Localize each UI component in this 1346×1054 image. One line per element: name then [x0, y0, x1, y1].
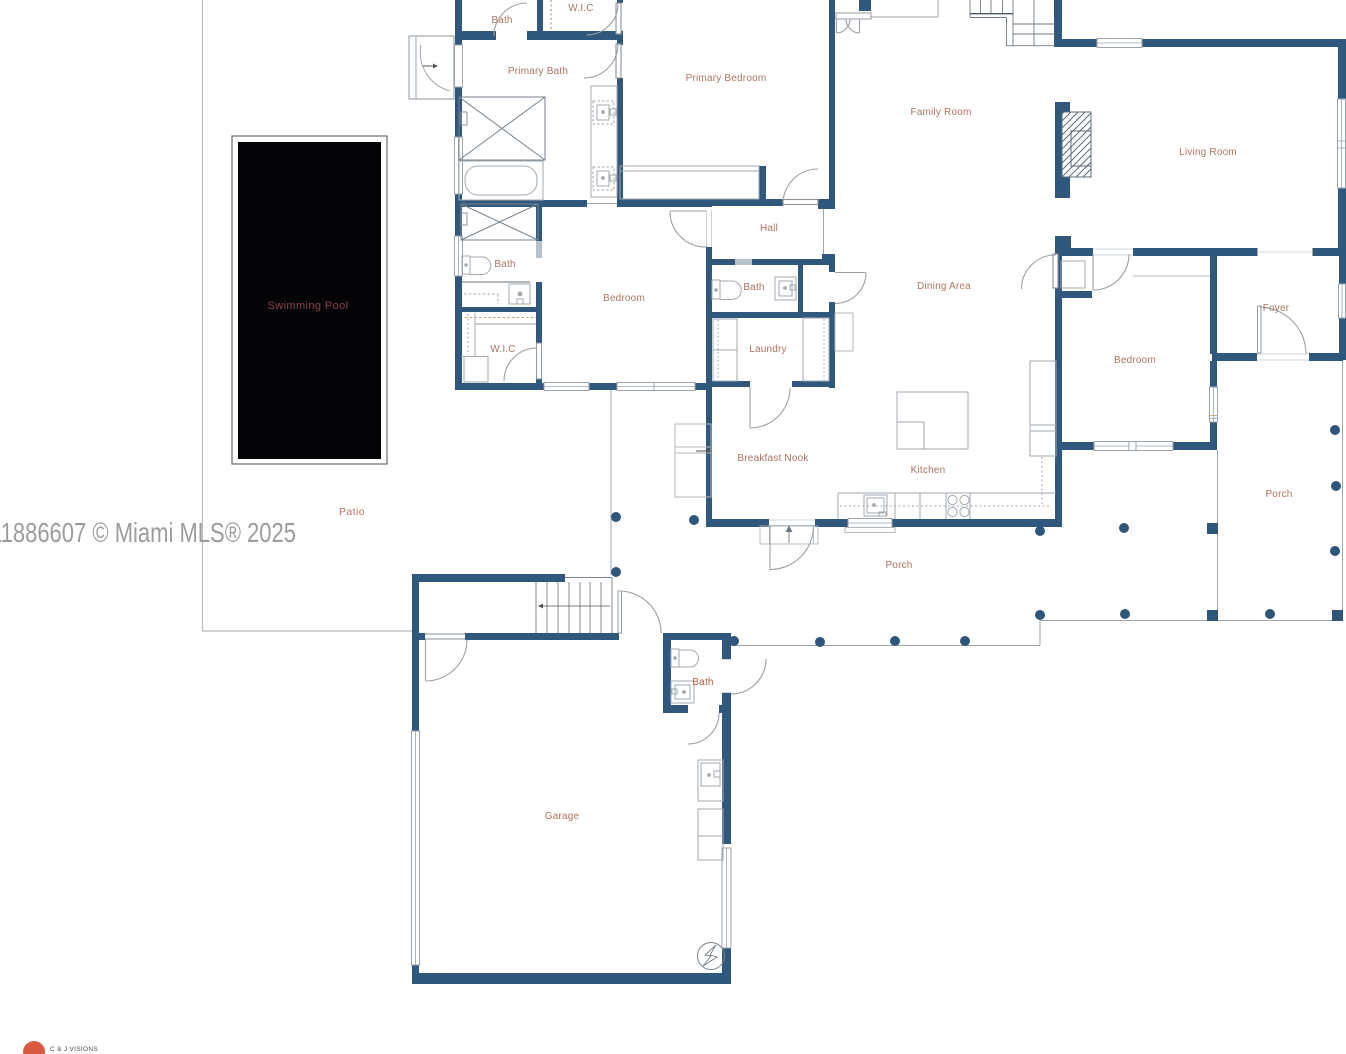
- svg-text:Porch: Porch: [885, 560, 912, 571]
- svg-text:Bath: Bath: [494, 259, 515, 270]
- svg-text:Kitchen: Kitchen: [911, 465, 946, 476]
- svg-text:Bedroom: Bedroom: [1114, 355, 1156, 366]
- svg-text:Swimming Pool: Swimming Pool: [267, 300, 348, 312]
- svg-text:Foyer: Foyer: [1263, 303, 1290, 314]
- svg-text:C & J VISIONS: C & J VISIONS: [50, 1046, 98, 1053]
- svg-text:Bath: Bath: [743, 282, 764, 293]
- svg-text:Family Room: Family Room: [910, 107, 971, 118]
- svg-text:11886607 © Miami MLS® 2025: 11886607 © Miami MLS® 2025: [0, 517, 296, 548]
- svg-text:Bath: Bath: [692, 677, 713, 688]
- svg-text:Patio: Patio: [339, 506, 365, 518]
- svg-text:Breakfast Nook: Breakfast Nook: [737, 453, 809, 464]
- svg-text:Garage: Garage: [545, 811, 580, 822]
- svg-text:Laundry: Laundry: [749, 344, 787, 355]
- svg-text:Bath: Bath: [491, 15, 512, 26]
- svg-text:Living Room: Living Room: [1179, 147, 1237, 158]
- svg-text:Dining Area: Dining Area: [917, 281, 971, 292]
- svg-text:Hall: Hall: [760, 223, 778, 234]
- svg-text:Bedroom: Bedroom: [603, 293, 645, 304]
- svg-text:Primary Bath: Primary Bath: [508, 66, 568, 77]
- svg-text:Primary Bedroom: Primary Bedroom: [686, 73, 767, 84]
- svg-text:W.I.C: W.I.C: [568, 3, 593, 14]
- svg-text:Porch: Porch: [1265, 489, 1292, 500]
- svg-text:W.I.C: W.I.C: [490, 344, 515, 355]
